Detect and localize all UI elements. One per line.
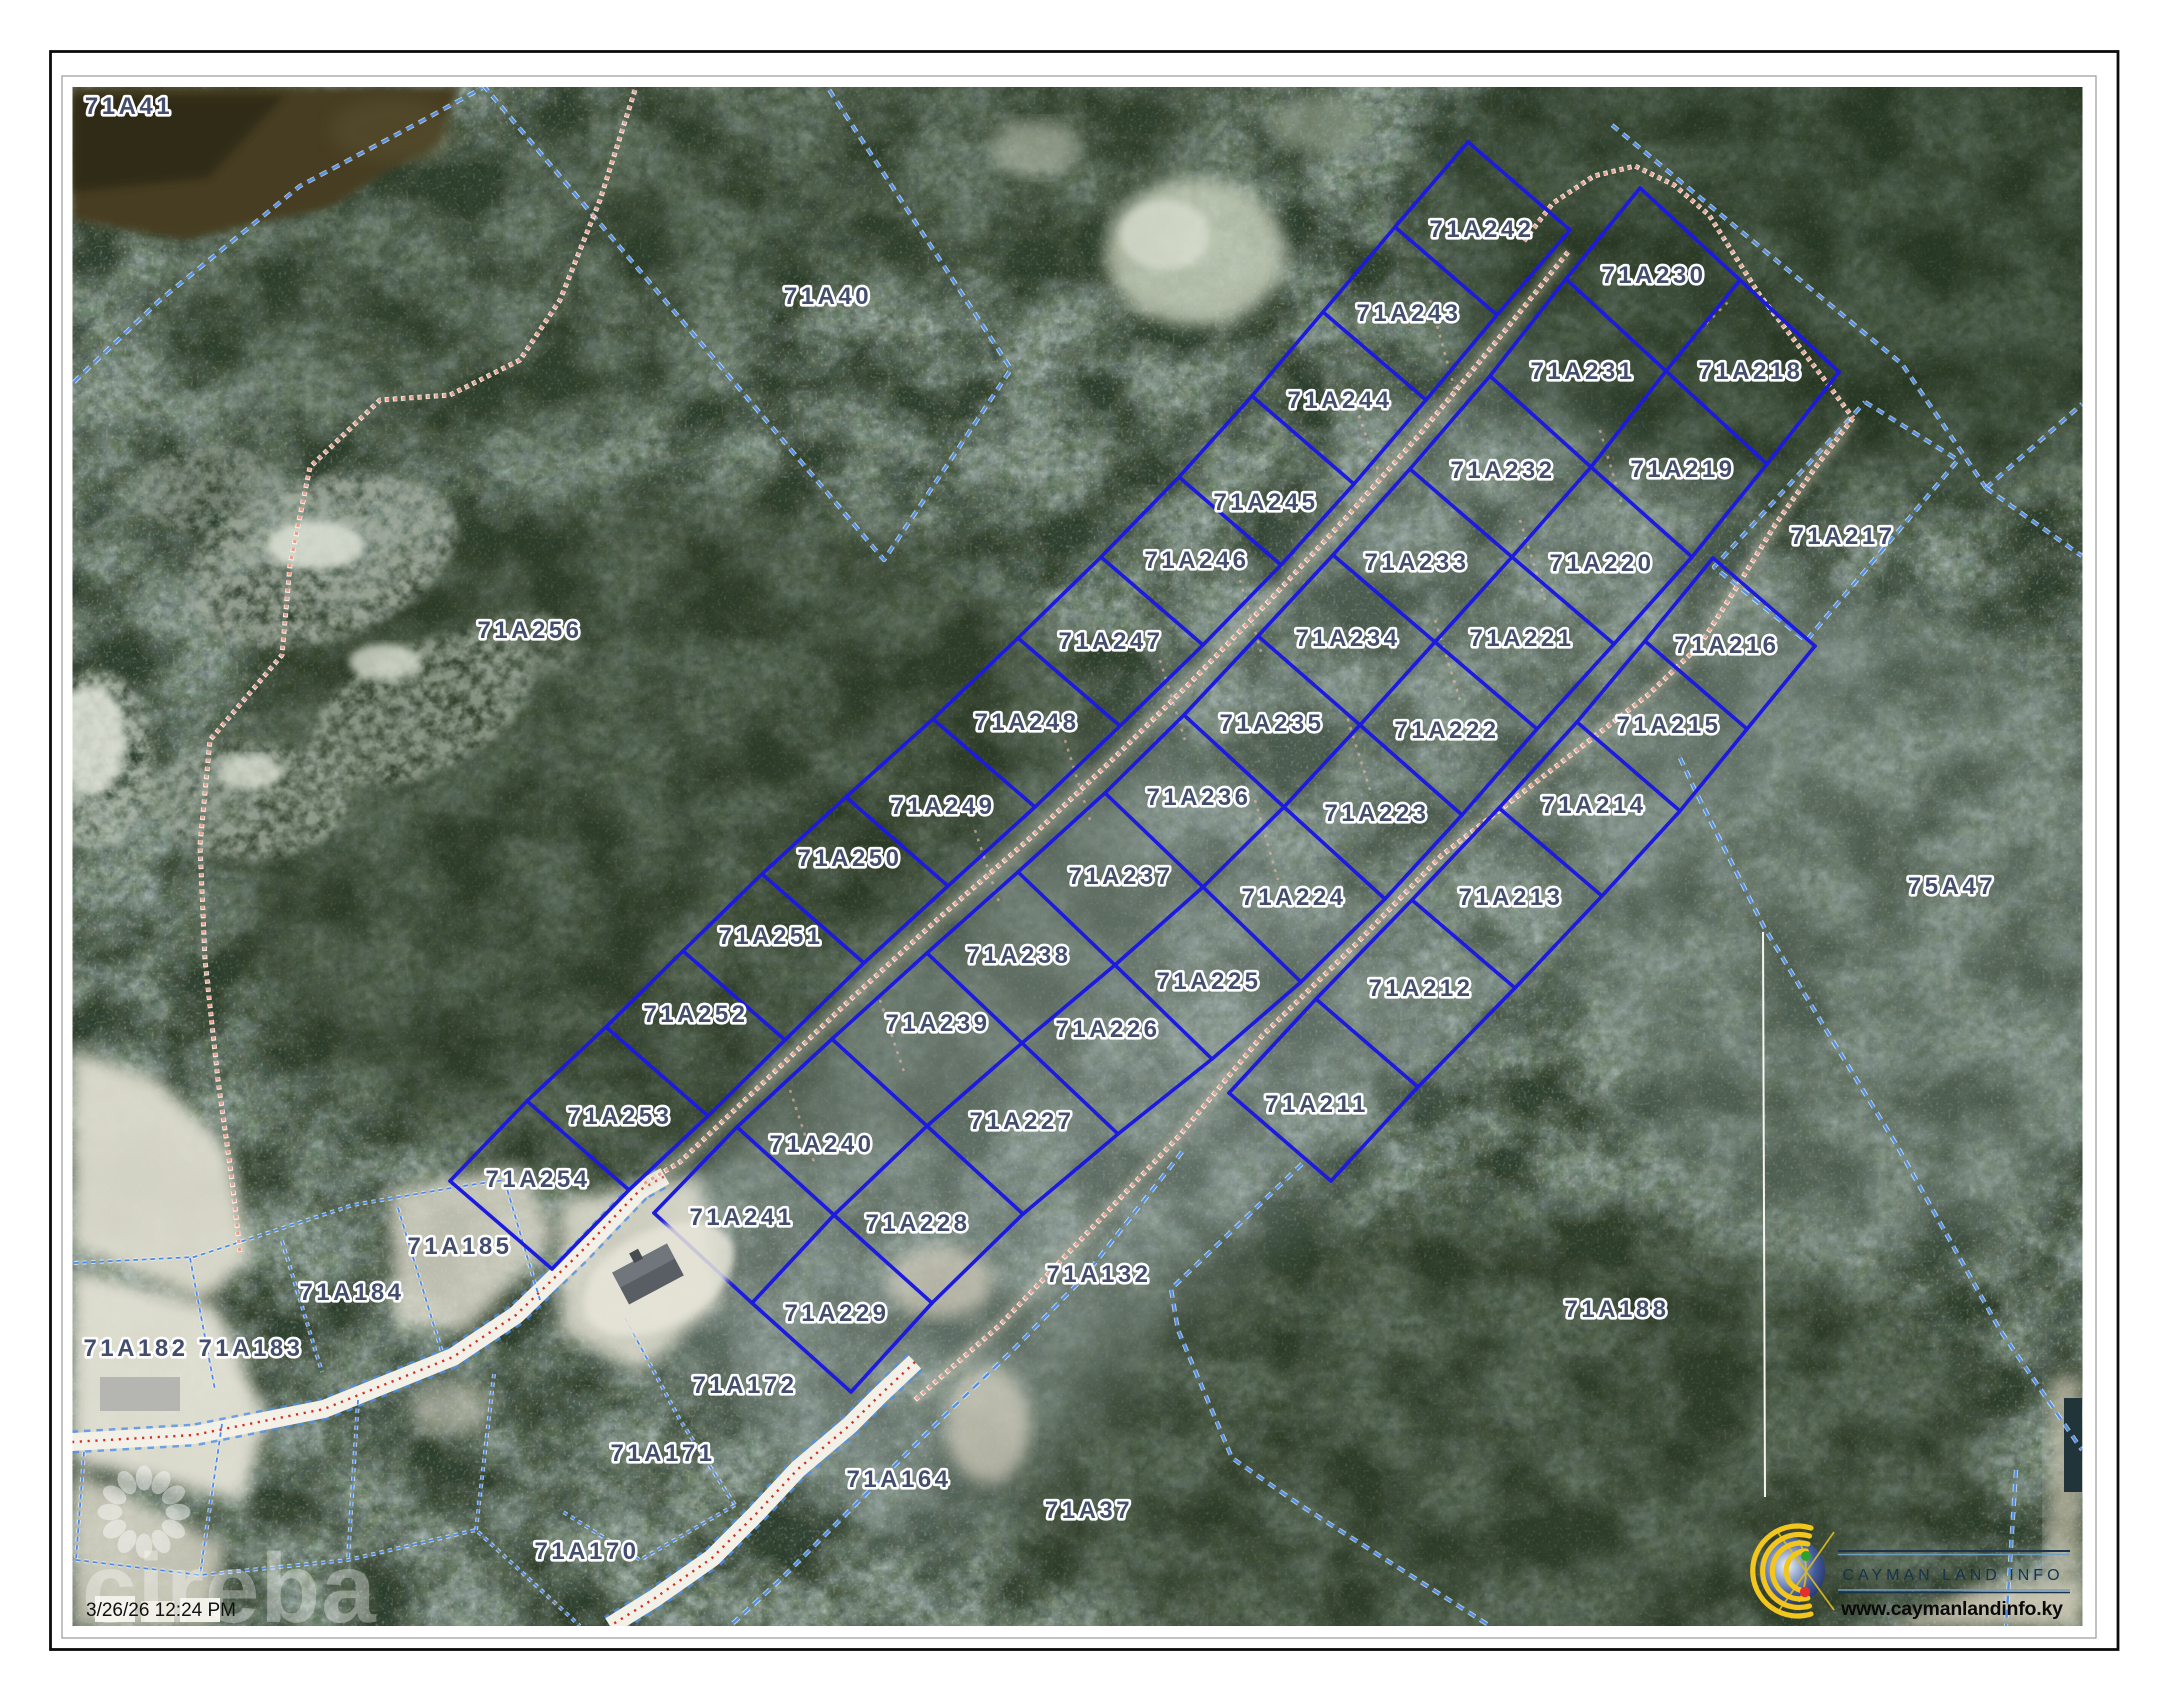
svg-text:CAYMAN LAND INFO: CAYMAN LAND INFO [1842,1567,2063,1584]
svg-text:71A219: 71A219 [1630,456,1735,483]
svg-text:71A40: 71A40 [784,283,872,310]
svg-text:71A239: 71A239 [885,1010,990,1037]
svg-text:71A229: 71A229 [784,1300,889,1327]
svg-text:71A224: 71A224 [1241,884,1346,911]
svg-text:71A183: 71A183 [198,1335,303,1362]
svg-text:71A247: 71A247 [1058,628,1163,655]
svg-text:71A246: 71A246 [1144,547,1249,574]
svg-text:71A164: 71A164 [846,1466,951,1493]
svg-text:71A253: 71A253 [567,1103,672,1130]
svg-text:75A47: 75A47 [1908,873,1996,900]
svg-text:71A41: 71A41 [85,93,173,120]
svg-text:71A172: 71A172 [692,1372,797,1399]
svg-text:71A244: 71A244 [1287,387,1392,414]
svg-text:71A216: 71A216 [1674,632,1779,659]
svg-text:71A170: 71A170 [534,1538,639,1565]
svg-text:71A254: 71A254 [485,1166,590,1193]
svg-text:71A185: 71A185 [407,1233,512,1260]
svg-text:71A222: 71A222 [1394,717,1499,744]
svg-text:71A182: 71A182 [83,1335,188,1362]
svg-text:71A211: 71A211 [1265,1091,1369,1118]
svg-text:71A242: 71A242 [1429,216,1534,243]
svg-text:71A217: 71A217 [1790,523,1895,550]
svg-text:3/26/26 12:24 PM: 3/26/26 12:24 PM [86,1600,236,1621]
svg-text:71A232: 71A232 [1450,457,1555,484]
svg-text:71A221: 71A221 [1469,625,1574,652]
svg-text:71A238: 71A238 [966,942,1071,969]
svg-text:71A231: 71A231 [1530,358,1635,385]
svg-text:71A249: 71A249 [890,793,995,820]
svg-text:71A234: 71A234 [1295,625,1400,652]
svg-text:71A248: 71A248 [974,709,1079,736]
svg-text:71A188: 71A188 [1564,1296,1669,1323]
svg-text:71A256: 71A256 [477,617,582,644]
svg-text:71A236: 71A236 [1146,784,1251,811]
svg-text:71A230: 71A230 [1601,262,1706,289]
svg-text:71A250: 71A250 [797,845,902,872]
svg-text:71A233: 71A233 [1364,549,1469,576]
svg-text:71A132: 71A132 [1046,1261,1151,1288]
svg-text:71A212: 71A212 [1368,975,1473,1002]
svg-text:71A243: 71A243 [1356,300,1461,327]
svg-text:71A235: 71A235 [1219,710,1324,737]
svg-text:71A226: 71A226 [1055,1016,1160,1043]
svg-text:71A225: 71A225 [1156,968,1261,995]
svg-text:71A245: 71A245 [1213,489,1318,516]
svg-text:71A228: 71A228 [865,1210,970,1237]
svg-text:71A223: 71A223 [1324,800,1429,827]
svg-text:www.caymanlandinfo.ky: www.caymanlandinfo.ky [1840,1598,2063,1620]
svg-text:71A213: 71A213 [1458,884,1563,911]
svg-text:71A171: 71A171 [610,1440,715,1467]
svg-text:71A252: 71A252 [643,1001,748,1028]
svg-text:71A184: 71A184 [299,1279,404,1306]
svg-text:71A37: 71A37 [1045,1497,1133,1524]
svg-text:71A220: 71A220 [1549,550,1654,577]
svg-text:71A227: 71A227 [969,1108,1074,1135]
svg-text:71A251: 71A251 [718,923,823,950]
svg-text:71A241: 71A241 [689,1204,794,1231]
svg-text:71A214: 71A214 [1541,792,1646,819]
svg-text:71A218: 71A218 [1698,358,1803,385]
svg-text:71A240: 71A240 [769,1131,874,1158]
svg-text:71A237: 71A237 [1068,863,1173,890]
svg-text:71A215: 71A215 [1616,712,1721,739]
